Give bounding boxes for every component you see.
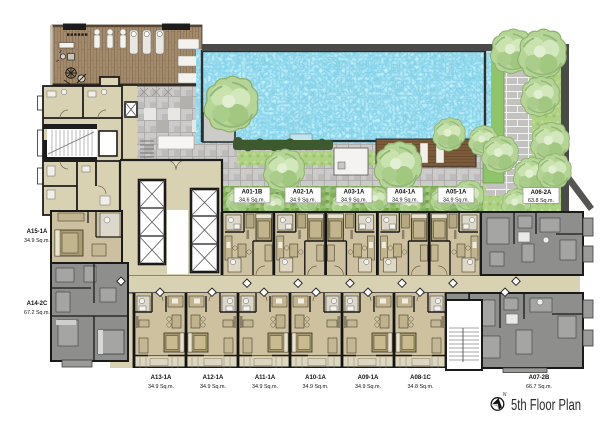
svg-text:66.7 Sq.m.: 66.7 Sq.m.: [526, 384, 552, 390]
svg-text:A07-2B: A07-2B: [529, 375, 550, 381]
svg-text:A08-1C: A08-1C: [410, 375, 431, 381]
svg-text:N: N: [503, 392, 507, 398]
svg-text:A09-1A: A09-1A: [358, 375, 379, 381]
svg-text:A02-1A: A02-1A: [293, 190, 314, 196]
svg-text:A10-1A: A10-1A: [305, 375, 326, 381]
svg-text:34.9 Sq.m.: 34.9 Sq.m.: [341, 198, 367, 204]
svg-text:A14-2C: A14-2C: [27, 301, 48, 307]
svg-text:A12-1A: A12-1A: [203, 375, 224, 381]
svg-text:34.8 Sq.m.: 34.8 Sq.m.: [407, 384, 433, 390]
svg-text:34.9 Sq.m.: 34.9 Sq.m.: [252, 384, 278, 390]
svg-text:A15-1A: A15-1A: [27, 229, 48, 235]
svg-text:A13-1A: A13-1A: [151, 375, 172, 381]
svg-text:A11-1A: A11-1A: [255, 375, 276, 381]
svg-text:A04-1A: A04-1A: [395, 190, 416, 196]
svg-text:A06-2A: A06-2A: [531, 190, 552, 196]
svg-text:34.9 Sq.m.: 34.9 Sq.m.: [290, 198, 316, 204]
svg-text:34.9 Sq.m.: 34.9 Sq.m.: [392, 198, 418, 204]
svg-text:63.8 Sq.m.: 63.8 Sq.m.: [528, 198, 554, 204]
svg-text:A01-1B: A01-1B: [242, 190, 263, 196]
svg-text:34.9 Sq.m.: 34.9 Sq.m.: [355, 384, 381, 390]
svg-text:34.9 Sq.m.: 34.9 Sq.m.: [24, 238, 50, 244]
svg-text:34.9 Sq.m.: 34.9 Sq.m.: [443, 198, 469, 204]
svg-text:A05-1A: A05-1A: [446, 190, 467, 196]
svg-text:34.9 Sq.m.: 34.9 Sq.m.: [200, 384, 226, 390]
svg-text:A03-1A: A03-1A: [344, 190, 365, 196]
svg-text:34.9 Sq.m.: 34.9 Sq.m.: [148, 384, 174, 390]
svg-text:5th Floor Plan: 5th Floor Plan: [511, 397, 581, 414]
svg-text:67.2 Sq.m.: 67.2 Sq.m.: [24, 310, 50, 316]
svg-text:34.6 Sq.m.: 34.6 Sq.m.: [239, 198, 265, 204]
svg-text:34.9 Sq.m.: 34.9 Sq.m.: [302, 384, 328, 390]
